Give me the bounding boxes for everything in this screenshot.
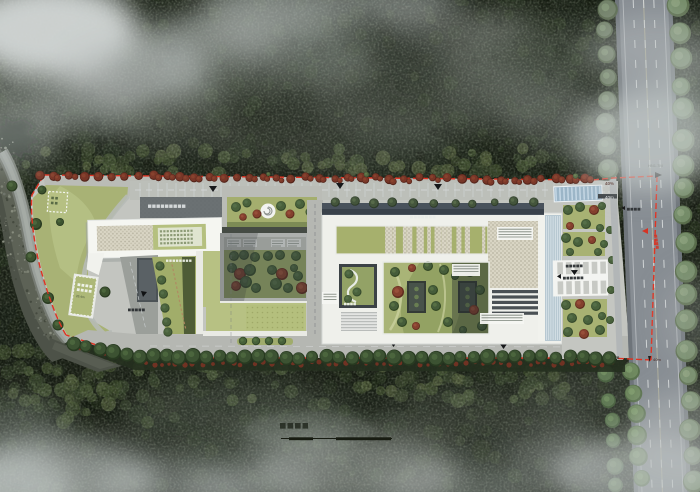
- svg-text:40m: 40m: [653, 357, 661, 362]
- svg-text:40m: 40m: [605, 195, 614, 200]
